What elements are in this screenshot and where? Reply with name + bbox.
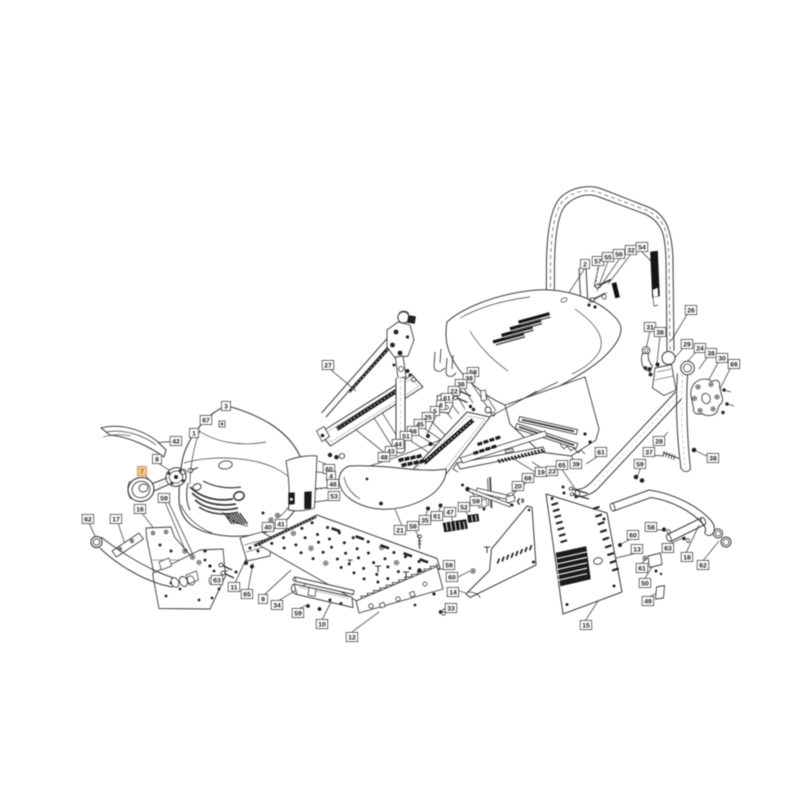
svg-text:38: 38 [656, 329, 664, 336]
svg-text:62: 62 [699, 562, 707, 569]
svg-text:40: 40 [264, 524, 272, 531]
svg-text:1: 1 [192, 430, 196, 437]
svg-text:48: 48 [380, 454, 388, 461]
svg-text:10: 10 [318, 621, 326, 628]
svg-text:54: 54 [638, 244, 646, 251]
svg-text:65: 65 [558, 462, 566, 469]
svg-text:61: 61 [638, 565, 646, 572]
svg-text:61: 61 [433, 513, 441, 520]
svg-text:❮9: ❮9 [516, 498, 525, 505]
svg-text:46: 46 [329, 481, 337, 488]
svg-text:12: 12 [348, 634, 356, 641]
svg-text:2: 2 [583, 261, 587, 268]
svg-text:27: 27 [324, 362, 332, 369]
svg-text:35: 35 [421, 517, 429, 524]
svg-text:57: 57 [594, 258, 602, 265]
svg-text:53: 53 [330, 493, 338, 500]
svg-text:56: 56 [615, 251, 623, 258]
svg-text:38: 38 [709, 455, 717, 462]
svg-text:13: 13 [633, 546, 641, 553]
svg-text:49: 49 [644, 598, 652, 605]
svg-text:28: 28 [655, 438, 663, 445]
svg-text:8: 8 [155, 456, 159, 463]
svg-text:37: 37 [645, 449, 653, 456]
svg-text:18: 18 [683, 554, 691, 561]
svg-text:50: 50 [641, 580, 649, 587]
svg-text:42: 42 [172, 438, 180, 445]
svg-text:11: 11 [230, 584, 237, 591]
svg-text:67: 67 [202, 417, 210, 424]
svg-text:30: 30 [718, 355, 726, 362]
svg-text:60: 60 [629, 532, 637, 539]
svg-text:24: 24 [696, 345, 704, 352]
svg-text:15: 15 [582, 622, 590, 629]
svg-text:29: 29 [683, 341, 691, 348]
svg-text:61: 61 [597, 449, 605, 456]
svg-text:26: 26 [687, 307, 695, 314]
svg-text:59: 59 [472, 498, 480, 505]
svg-text:21: 21 [396, 527, 404, 534]
svg-text:59: 59 [636, 461, 644, 468]
svg-text:63: 63 [213, 577, 221, 584]
svg-text:17: 17 [112, 516, 120, 523]
svg-text:58: 58 [409, 523, 417, 530]
svg-text:32: 32 [627, 247, 635, 254]
svg-text:34: 34 [273, 602, 281, 609]
svg-text:3: 3 [224, 403, 228, 410]
svg-text:9: 9 [261, 596, 265, 603]
svg-text:23: 23 [548, 468, 556, 475]
svg-text:19: 19 [537, 469, 545, 476]
svg-text:33: 33 [447, 605, 455, 612]
svg-text:55: 55 [604, 254, 612, 261]
svg-text:41: 41 [277, 521, 285, 528]
svg-text:31: 31 [646, 324, 654, 331]
svg-text:20: 20 [514, 483, 522, 490]
svg-text:58: 58 [647, 524, 655, 531]
svg-text:59: 59 [160, 495, 168, 502]
svg-text:39: 39 [572, 461, 580, 468]
svg-text:63: 63 [664, 545, 672, 552]
svg-text:66: 66 [524, 475, 532, 482]
svg-text:7: 7 [140, 468, 144, 475]
svg-text:14: 14 [449, 589, 457, 596]
svg-text:59: 59 [294, 610, 302, 617]
svg-text:59: 59 [445, 562, 453, 569]
svg-text:66: 66 [730, 361, 738, 368]
svg-text:62: 62 [84, 516, 92, 523]
svg-text:47: 47 [446, 509, 454, 516]
svg-text:60: 60 [448, 574, 456, 581]
svg-text:65: 65 [243, 591, 251, 598]
svg-text:38: 38 [707, 350, 715, 357]
svg-text:16: 16 [136, 506, 144, 513]
svg-text:52: 52 [460, 504, 468, 511]
